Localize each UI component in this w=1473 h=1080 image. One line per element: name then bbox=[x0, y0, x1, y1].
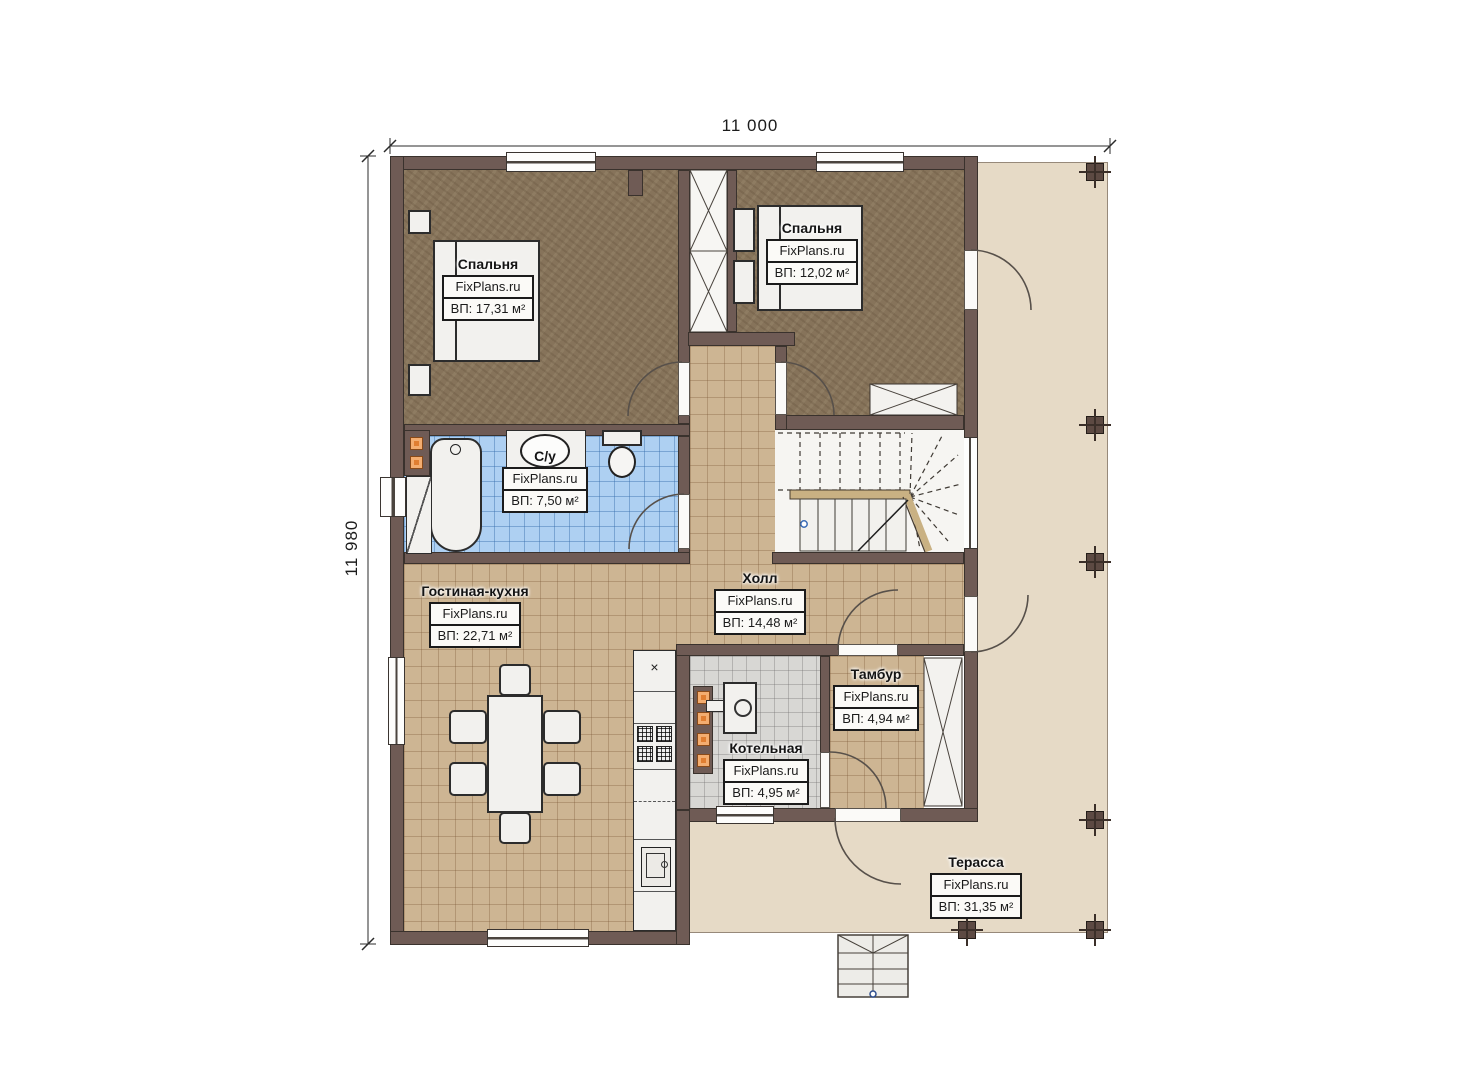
room-area: ВП: 14,48 м² bbox=[716, 613, 805, 633]
room-info-box: FixPlans.ru ВП: 7,50 м² bbox=[502, 467, 587, 513]
wall bbox=[775, 415, 964, 430]
room-name: Котельная bbox=[686, 740, 846, 756]
brand-label: FixPlans.ru bbox=[444, 277, 533, 299]
brand-label: FixPlans.ru bbox=[725, 761, 806, 783]
window-boiler bbox=[716, 806, 774, 824]
counter-divider bbox=[634, 839, 675, 840]
room-area: ВП: 31,35 м² bbox=[932, 897, 1021, 917]
boiler-dial-icon bbox=[734, 699, 752, 717]
room-area: ВП: 22,71 м² bbox=[431, 626, 520, 646]
room-label-bedroom-2: Спальня FixPlans.ru ВП: 12,02 м² bbox=[732, 220, 892, 285]
door-opening-bathroom bbox=[678, 494, 690, 549]
chair bbox=[543, 762, 581, 796]
wall bbox=[676, 644, 964, 656]
door-opening-hall-terrace bbox=[964, 596, 978, 652]
window-living bbox=[487, 929, 589, 947]
chair bbox=[449, 710, 487, 744]
kitchen-counter: × bbox=[633, 650, 676, 931]
stove-burner-icon bbox=[637, 746, 653, 762]
brand-label: FixPlans.ru bbox=[932, 875, 1021, 897]
terrace-post bbox=[1086, 811, 1104, 829]
brand-label: FixPlans.ru bbox=[835, 687, 916, 709]
room-name: Спальня bbox=[732, 220, 892, 236]
counter-divider bbox=[634, 723, 675, 724]
room-name: Терасса bbox=[896, 854, 1056, 870]
wall-pilaster bbox=[628, 170, 643, 196]
counter-divider-dashed bbox=[634, 801, 675, 802]
radiator-panel bbox=[404, 430, 430, 476]
terrace-post bbox=[1086, 163, 1104, 181]
ventilation-shaft bbox=[690, 170, 727, 332]
room-label-vestibule: Тамбур FixPlans.ru ВП: 4,94 м² bbox=[796, 666, 956, 731]
counter-divider bbox=[634, 769, 675, 770]
room-info-box: FixPlans.ru ВП: 14,48 м² bbox=[714, 589, 807, 635]
nightstand bbox=[408, 210, 431, 234]
room-label-boiler-room: Котельная FixPlans.ru ВП: 4,95 м² bbox=[686, 740, 846, 805]
room-area: ВП: 4,94 м² bbox=[835, 709, 916, 729]
entrance-steps bbox=[838, 935, 908, 997]
chair bbox=[499, 812, 531, 844]
brand-label: FixPlans.ru bbox=[504, 469, 585, 491]
window-bathroom bbox=[380, 477, 406, 517]
room-info-box: FixPlans.ru ВП: 31,35 м² bbox=[930, 873, 1023, 919]
window-bedroom-2 bbox=[816, 152, 904, 172]
room-label-terrace: Терасса FixPlans.ru ВП: 31,35 м² bbox=[896, 854, 1056, 919]
bath-cabinet bbox=[406, 476, 432, 554]
room-area: ВП: 17,31 м² bbox=[444, 299, 533, 319]
chair bbox=[543, 710, 581, 744]
room-info-box: FixPlans.ru ВП: 4,94 м² bbox=[833, 685, 918, 731]
room-name: Тамбур bbox=[796, 666, 956, 682]
room-label-bedroom-1: Спальня FixPlans.ru ВП: 17,31 м² bbox=[408, 256, 568, 321]
room-area: ВП: 4,95 м² bbox=[725, 783, 806, 803]
window-stairs bbox=[962, 437, 978, 549]
stove-burner-icon bbox=[656, 726, 672, 742]
room-name: С/у bbox=[465, 448, 625, 464]
drain-icon bbox=[661, 861, 668, 868]
staircase bbox=[775, 430, 964, 552]
wall bbox=[390, 156, 404, 945]
dimension-height-label: 11 980 bbox=[342, 508, 362, 588]
counter-divider bbox=[634, 691, 675, 692]
door-opening-entrance bbox=[835, 808, 901, 822]
door-opening-bedroom-1 bbox=[678, 362, 690, 416]
brand-label: FixPlans.ru bbox=[716, 591, 805, 613]
corridor-floor bbox=[690, 346, 775, 564]
toilet-tank bbox=[602, 430, 642, 446]
room-name: Холл bbox=[680, 570, 840, 586]
indicator-icon bbox=[697, 712, 710, 725]
brand-label: FixPlans.ru bbox=[768, 241, 857, 263]
door-opening-vestibule-hall bbox=[838, 644, 898, 656]
room-label-living-kitchen: Гостиная-кухня FixPlans.ru ВП: 22,71 м² bbox=[395, 583, 555, 648]
room-label-hall: Холл FixPlans.ru ВП: 14,48 м² bbox=[680, 570, 840, 635]
terrace-post bbox=[1086, 921, 1104, 939]
room-name: Гостиная-кухня bbox=[395, 583, 555, 599]
room-info-box: FixPlans.ru ВП: 22,71 м² bbox=[429, 602, 522, 648]
wall bbox=[688, 332, 795, 346]
nightstand bbox=[408, 364, 431, 396]
room-area: ВП: 7,50 м² bbox=[504, 491, 585, 511]
room-area: ВП: 12,02 м² bbox=[768, 263, 857, 283]
chair bbox=[499, 664, 531, 696]
floor-plan: 11 000 11 980 bbox=[0, 0, 1473, 1080]
chair bbox=[449, 762, 487, 796]
room-label-bathroom: С/у FixPlans.ru ВП: 7,50 м² bbox=[465, 448, 625, 513]
door-opening-bedroom-2-terrace bbox=[964, 250, 978, 310]
hood-icon: × bbox=[634, 659, 675, 675]
dining-table bbox=[487, 695, 543, 813]
window-bedroom-1 bbox=[506, 152, 596, 172]
wall bbox=[772, 552, 964, 564]
stove-burner-icon bbox=[637, 726, 653, 742]
brand-label: FixPlans.ru bbox=[431, 604, 520, 626]
terrace-post bbox=[1086, 416, 1104, 434]
kitchen-sink bbox=[641, 847, 671, 887]
room-info-box: FixPlans.ru ВП: 17,31 м² bbox=[442, 275, 535, 321]
dimension-width-label: 11 000 bbox=[700, 116, 800, 136]
room-name: Спальня bbox=[408, 256, 568, 272]
boiler-pipe bbox=[706, 700, 724, 712]
faucet-icon bbox=[450, 444, 461, 455]
door-opening-bedroom-2 bbox=[775, 362, 787, 415]
room-info-box: FixPlans.ru ВП: 4,95 м² bbox=[723, 759, 808, 805]
wall bbox=[404, 552, 690, 564]
stove-burner-icon bbox=[656, 746, 672, 762]
window-living-left bbox=[388, 657, 405, 745]
wall bbox=[676, 810, 690, 945]
counter-divider bbox=[634, 891, 675, 892]
terrace-post bbox=[958, 921, 976, 939]
radiator-icon bbox=[410, 437, 423, 450]
radiator-icon bbox=[410, 456, 423, 469]
boiler-unit bbox=[723, 682, 757, 734]
room-info-box: FixPlans.ru ВП: 12,02 м² bbox=[766, 239, 859, 285]
terrace-post bbox=[1086, 553, 1104, 571]
